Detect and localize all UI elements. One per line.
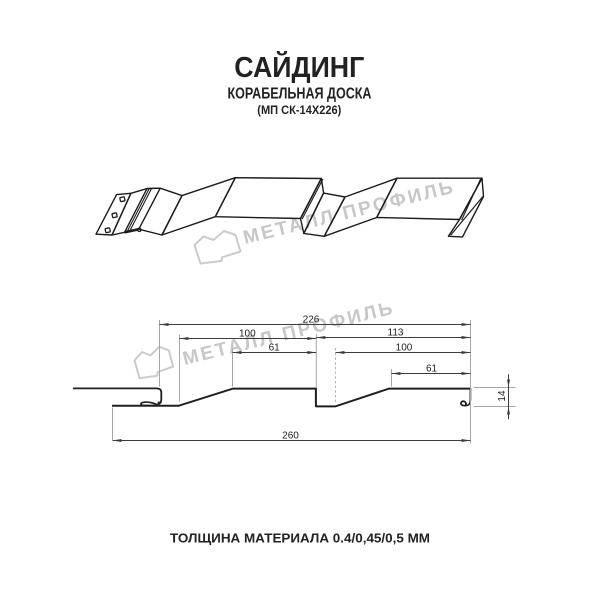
svg-text:КОРАБЕЛЬНАЯ ДОСКА: КОРАБЕЛЬНАЯ ДОСКА: [228, 86, 372, 103]
svg-text:100: 100: [396, 342, 413, 353]
svg-text:САЙДИНГ: САЙДИНГ: [234, 50, 364, 84]
svg-text:14: 14: [497, 390, 508, 402]
svg-text:100: 100: [239, 328, 256, 339]
svg-text:226: 226: [303, 314, 320, 325]
svg-text:260: 260: [282, 430, 299, 441]
svg-text:ТОЛЩИНА МАТЕРИАЛА 0.4/0,45/0,5: ТОЛЩИНА МАТЕРИАЛА 0.4/0,45/0,5 ММ: [170, 530, 430, 545]
svg-text:61: 61: [426, 363, 438, 374]
svg-text:113: 113: [388, 327, 404, 338]
svg-text:61: 61: [269, 342, 281, 353]
svg-text:(МП СК-14Х226): (МП СК-14Х226): [257, 103, 341, 117]
